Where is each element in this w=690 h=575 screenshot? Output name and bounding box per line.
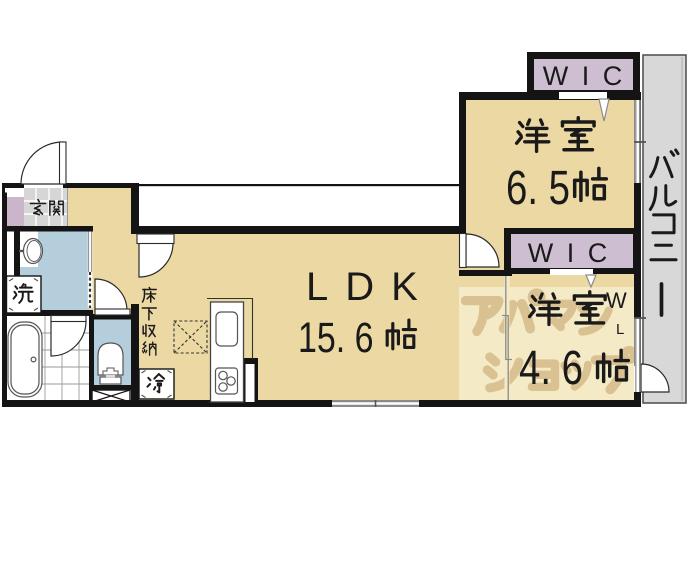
svg-text:6. 5: 6. 5 [506, 162, 570, 215]
svg-text:15. 6: 15. 6 [298, 314, 374, 361]
svg-text:W I C: W I C [543, 61, 626, 91]
svg-text:4. 6: 4. 6 [519, 342, 583, 395]
svg-text:W I C: W I C [528, 238, 611, 268]
svg-text:LDK: LDK [306, 265, 435, 309]
svg-text:L: L [616, 321, 624, 338]
